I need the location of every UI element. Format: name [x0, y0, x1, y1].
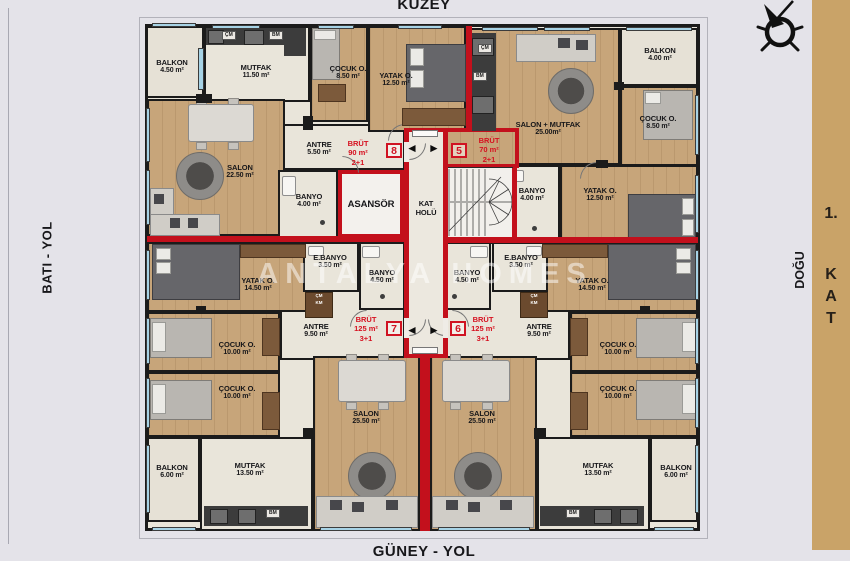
rug: [176, 152, 224, 200]
chair: [450, 402, 461, 410]
dining-table: [442, 360, 510, 402]
sofa: [150, 214, 220, 236]
room-label-yatak-a5: YATAK O.12.50 m²: [583, 186, 616, 203]
wardrobe: [318, 84, 346, 102]
window-right-2: [695, 175, 699, 233]
sofa-pillow: [154, 194, 164, 204]
window-top-3: [318, 25, 354, 29]
floor-plan-page: { "directions": { "north": "KUZEY", "sou…: [0, 0, 850, 550]
stove-icon: [210, 509, 228, 524]
sink-icon: [472, 96, 494, 114]
room-label-salon-a6: SALON25.50 m²: [468, 409, 495, 426]
direction-east-label: DOĞU: [793, 240, 807, 300]
stove-icon: [594, 509, 612, 524]
window-left-1: [146, 108, 150, 162]
room-label-balkon-a8: BALKON4.50 m²: [156, 58, 187, 75]
room-label-ebanyo-a6: E.BANYO3.50 m²: [504, 253, 537, 270]
pillow: [156, 262, 171, 274]
appliance-tag-cm: ÇM: [222, 31, 236, 40]
closet-cm-km: ÇM KM: [305, 292, 333, 318]
unit-info-a7: BRÜT125 m²3+1: [354, 315, 378, 343]
wall-column: [640, 306, 650, 314]
fridge-icon: [284, 28, 306, 56]
window-top-6: [544, 27, 590, 31]
room-label-salon-a8: SALON22.50 m²: [226, 163, 253, 180]
unit-info-a8: BRÜT90 m²2+1: [348, 139, 369, 167]
sofa-pillow: [386, 500, 398, 510]
window-right-5: [695, 378, 699, 428]
room-label-yatak-a6: YATAK O.14.50 m²: [575, 276, 608, 293]
window-balkon-a6: [695, 445, 699, 513]
wall-column: [196, 306, 206, 314]
window-top-1: [152, 23, 196, 27]
room-label-banyo-a6: BANYO4.50 m²: [454, 268, 481, 285]
pillow: [314, 30, 336, 40]
room-label-salon-a7: SALON25.50 m²: [352, 409, 379, 426]
room-label-antre-a7: ANTRE9.50 m²: [303, 322, 328, 339]
floor-letter-a: A: [812, 288, 850, 306]
apartment-badge-5: 5: [451, 143, 467, 158]
pillow: [645, 92, 661, 104]
room-label-antre-a6: ANTRE9.50 m²: [526, 322, 551, 339]
room-label-cocuk1-a7: ÇOCUK O.10.00 m²: [219, 340, 256, 357]
sink-icon: [238, 509, 256, 524]
direction-north-label: KUZEY: [397, 0, 450, 14]
window-top-2: [212, 25, 260, 29]
compass-icon: [746, 0, 810, 60]
bathroom-sink: [362, 246, 380, 258]
direction-west-label: BATI - YOL: [40, 198, 55, 318]
room-label-cocuk-a5: ÇOCUK O.8.50 m²: [640, 114, 677, 131]
party-wall-salons: [420, 358, 430, 531]
wardrobe: [570, 392, 588, 430]
closet-label-cm: ÇM: [521, 293, 547, 300]
pillow: [676, 262, 691, 274]
sofa-pillow: [468, 502, 480, 512]
sink-icon: [620, 509, 638, 524]
sofa-pillow: [500, 500, 512, 510]
room-label-yatak-a8: YATAK O.12.50 m²: [379, 71, 412, 88]
window-left-5: [146, 378, 150, 428]
door-opening-a6: [443, 318, 448, 338]
window-top-4: [398, 25, 442, 29]
window-right-3: [695, 250, 699, 300]
sofa-pillow: [188, 218, 198, 228]
wall-column: [534, 428, 546, 439]
sofa-pillow: [446, 500, 458, 510]
sofa-pillow: [558, 38, 570, 48]
room-label-mutfak-a7: MUTFAK13.50 m²: [235, 461, 266, 478]
room-label-salon-mutfak-a5: SALON + MUTFAK25.00m²: [516, 120, 581, 137]
apartment-divider-right: [443, 237, 698, 243]
wardrobe: [240, 244, 306, 258]
apartment-badge-6: 6: [450, 321, 466, 336]
window-right-4: [695, 318, 699, 364]
closet-cm-km: ÇM KM: [520, 292, 548, 318]
room-label-cocuk-a8: ÇOCUK O.8.50 m²: [330, 64, 367, 81]
sofa-pillow: [170, 218, 180, 228]
room-label-balkon-a6: BALKON6.00 m²: [660, 463, 691, 480]
wardrobe: [262, 392, 280, 430]
room-label-mutfak-a8: MUTFAK11.50 m²: [241, 63, 272, 80]
appliance-tag-bm: BM: [266, 509, 280, 518]
wall-column: [196, 94, 212, 103]
rug: [454, 452, 502, 500]
wall-column: [614, 82, 624, 90]
closet-label-km: KM: [306, 300, 332, 307]
dining-table: [188, 104, 254, 142]
wall-column: [303, 428, 315, 439]
closet-label-km: KM: [521, 300, 547, 307]
bathroom-drain: [320, 220, 325, 225]
pillow: [152, 384, 166, 414]
window-top-7: [626, 27, 692, 31]
window-bottom-2: [320, 527, 412, 531]
page-left-border: [8, 8, 9, 544]
room-label-cocuk2-a7: ÇOCUK O.10.00 m²: [219, 384, 256, 401]
sink-icon: [244, 30, 264, 45]
entry-arrow-right-top: ►: [428, 142, 440, 154]
chair: [228, 142, 239, 150]
room-label-banyo-a5: BANYO4.00 m²: [519, 186, 546, 203]
hall-door-top: [412, 130, 438, 137]
pillow: [676, 248, 691, 260]
bathroom-sink: [282, 176, 296, 196]
closet-label-cm: ÇM: [306, 293, 332, 300]
room-label-cocuk2-a6: ÇOCUK O.10.00 m²: [600, 384, 637, 401]
wardrobe: [262, 318, 280, 356]
floor-number: 1.: [812, 205, 850, 223]
room-label-banyo-a8: BANYO4.00 m²: [296, 192, 323, 209]
bathroom-drain: [452, 294, 457, 299]
appliance-tag-bm: BM: [473, 72, 487, 81]
floor-tab: 1. K A T: [812, 0, 850, 550]
window-left-3: [146, 250, 150, 300]
hall-door-bottom: [412, 347, 438, 354]
wall-column: [303, 116, 313, 130]
party-wall-top: [466, 26, 472, 132]
pillow: [682, 322, 696, 352]
chair: [378, 402, 389, 410]
room-label-mutfak-a6: MUTFAK13.50 m²: [583, 461, 614, 478]
entry-arrow-left-bottom: ◄: [406, 324, 418, 336]
wardrobe: [570, 318, 588, 356]
pillow: [152, 322, 166, 352]
window-bottom-1: [152, 527, 196, 531]
room-label-yatak-a7: YATAK O.14.50 m²: [241, 276, 274, 293]
pillow: [682, 198, 694, 215]
room-label-antre-a8: ANTRE5.50 m²: [306, 140, 331, 157]
appliance-tag-bm: BM: [269, 31, 283, 40]
pillow: [682, 384, 696, 414]
room-label-banyo-a7: BANYO4.50 m²: [369, 268, 396, 285]
elevator-label: ASANSÖR: [348, 199, 395, 210]
dining-table: [338, 360, 406, 402]
staircase: [443, 167, 513, 238]
window-left-4: [146, 318, 150, 364]
apartment-badge-7: 7: [386, 321, 402, 336]
sofa-pillow: [330, 500, 342, 510]
wardrobe: [402, 108, 466, 126]
unit-info-a6: BRÜT125 m²3+1: [471, 315, 495, 343]
pillow: [156, 248, 171, 260]
bathroom-sink: [470, 246, 488, 258]
window-top-5: [482, 27, 538, 31]
rug: [348, 452, 396, 500]
floor-letter-t: T: [812, 310, 850, 328]
apartment-divider-left: [147, 236, 409, 242]
room-label-cocuk1-a6: ÇOCUK O.10.00 m²: [600, 340, 637, 357]
unit-info-a5: BRÜT70 m²2+1: [479, 136, 500, 164]
chair: [196, 142, 207, 150]
apartment-badge-8: 8: [386, 143, 402, 158]
window-bottom-4: [654, 527, 694, 531]
direction-south-label: GÜNEY - YOL: [373, 543, 475, 561]
room-label-ebanyo-a7: E.BANYO3.50 m²: [313, 253, 346, 270]
bathroom-drain: [532, 226, 537, 231]
bathroom-drain: [380, 294, 385, 299]
pillow: [410, 48, 424, 66]
window-balkon-a7: [146, 445, 150, 513]
wall-column: [596, 160, 608, 168]
entry-arrow-right-bottom: ►: [428, 324, 440, 336]
room-label-balkon-a5: BALKON4.00 m²: [644, 46, 675, 63]
rug: [548, 68, 594, 114]
appliance-tag-bm: BM: [566, 509, 580, 518]
window-left-2: [146, 170, 150, 225]
window-right-1: [695, 95, 699, 155]
appliance-tag-cm: ÇM: [478, 44, 492, 53]
room-label-balkon-a7: BALKON6.00 m²: [156, 463, 187, 480]
pillow: [682, 219, 694, 236]
stair-wall-right: [512, 168, 517, 242]
entry-arrow-left-top: ◄: [406, 142, 418, 154]
hall-label: KATHOLÜ: [416, 199, 437, 217]
window-balkon-a8: [198, 48, 204, 90]
sofa-pillow: [352, 502, 364, 512]
wardrobe: [542, 244, 608, 258]
sofa-pillow: [576, 40, 588, 50]
floor-letter-k: K: [812, 266, 850, 284]
window-bottom-3: [438, 527, 530, 531]
